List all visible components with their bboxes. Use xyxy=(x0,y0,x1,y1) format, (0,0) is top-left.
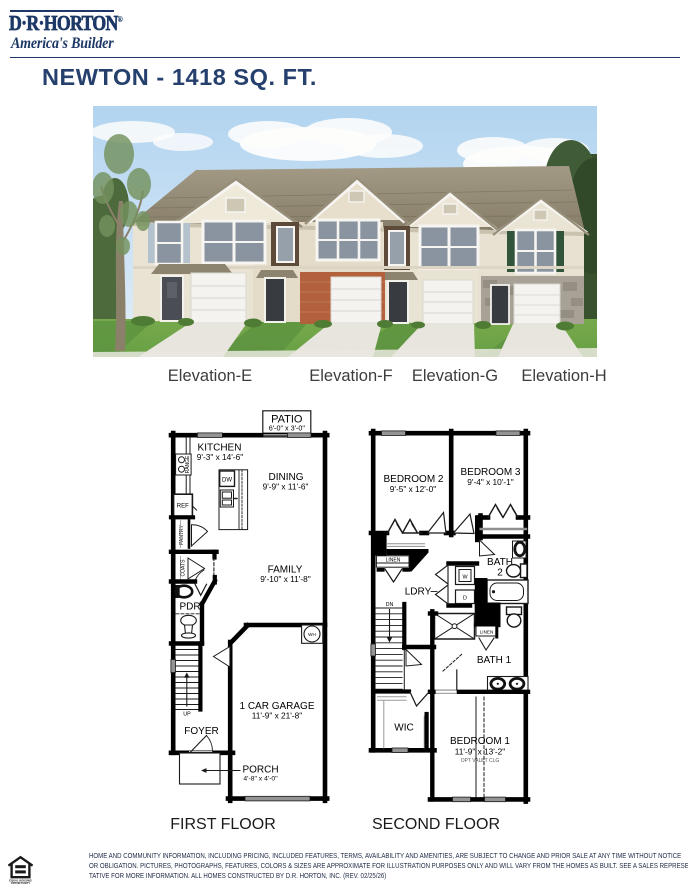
svg-text:PORCH: PORCH xyxy=(242,765,278,776)
svg-text:11'-9" x 13'-2": 11'-9" x 13'-2" xyxy=(455,747,505,757)
svg-text:REF: REF xyxy=(177,504,189,510)
svg-text:9'-10" x 11'-8": 9'-10" x 11'-8" xyxy=(260,574,310,584)
svg-text:PANTRY: PANTRY xyxy=(179,524,185,544)
svg-text:COATS: COATS xyxy=(181,559,187,577)
svg-text:9'-5" x 12'-0": 9'-5" x 12'-0" xyxy=(390,484,436,494)
svg-text:FOYER: FOYER xyxy=(184,726,218,737)
svg-text:LINEN: LINEN xyxy=(480,630,494,635)
svg-text:WIC: WIC xyxy=(394,723,413,734)
svg-text:6'-0" x 3'-0": 6'-0" x 3'-0" xyxy=(269,424,306,433)
svg-text:BATH 1: BATH 1 xyxy=(477,655,512,666)
svg-text:9'-3" x 14'-6": 9'-3" x 14'-6" xyxy=(197,452,243,462)
svg-text:9'-9" x 11'-6": 9'-9" x 11'-6" xyxy=(263,482,309,492)
svg-text:OPT VAULT CLG: OPT VAULT CLG xyxy=(461,758,500,764)
svg-text:4'-8" x 4'-0": 4'-8" x 4'-0" xyxy=(243,776,278,783)
svg-text:DN: DN xyxy=(386,602,394,608)
svg-text:9'-4" x 10'-1": 9'-4" x 10'-1" xyxy=(467,477,513,487)
svg-text:WH: WH xyxy=(308,632,316,637)
svg-text:DW: DW xyxy=(222,478,232,484)
svg-text:11'-9" x 21'-8": 11'-9" x 21'-8" xyxy=(252,711,302,721)
svg-text:RANGE: RANGE xyxy=(185,455,191,473)
svg-text:PDR: PDR xyxy=(179,602,200,613)
svg-text:LDRY: LDRY xyxy=(405,587,432,598)
svg-text:D: D xyxy=(463,596,467,602)
svg-text:OPPORTUNITY: OPPORTUNITY xyxy=(11,881,31,884)
svg-text:UP: UP xyxy=(183,712,191,718)
svg-text:LINEN: LINEN xyxy=(386,558,401,564)
svg-text:BEDROOM 1: BEDROOM 1 xyxy=(450,736,510,747)
svg-text:2: 2 xyxy=(497,568,503,579)
